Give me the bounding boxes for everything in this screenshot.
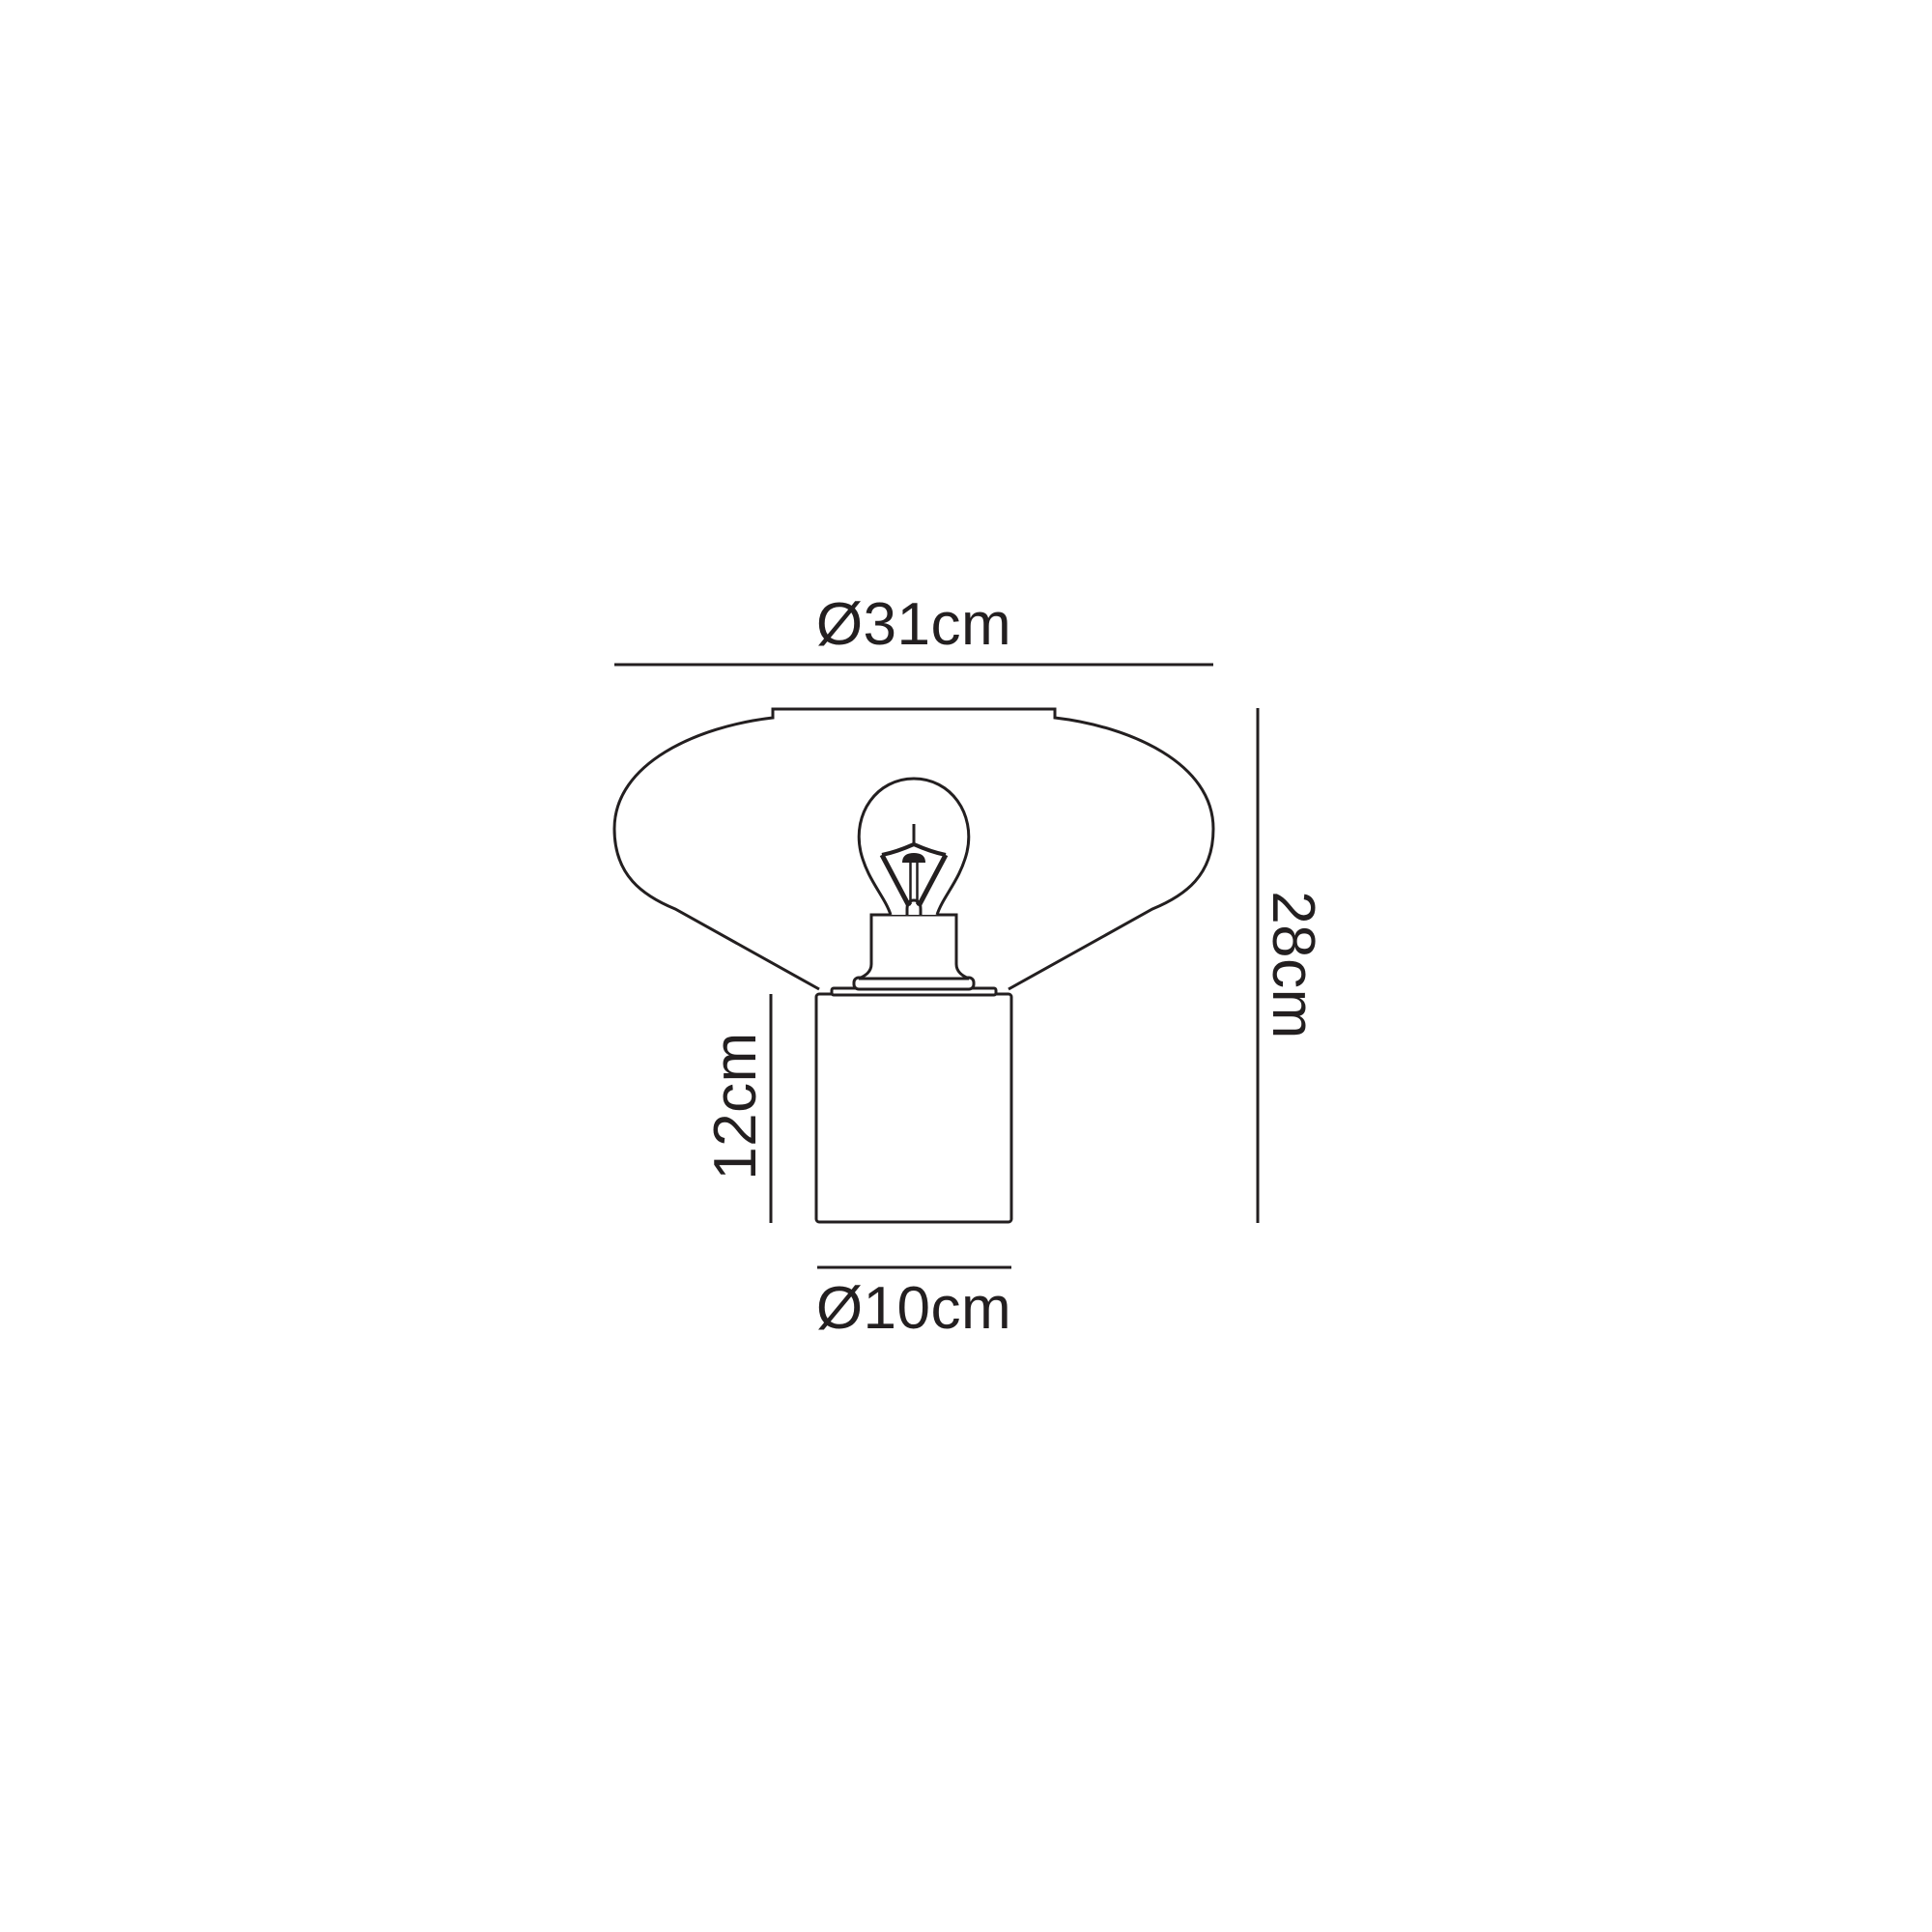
overall-height-label: 28cm xyxy=(1260,891,1326,1039)
bulb-glass-outline xyxy=(859,779,969,915)
socket-body xyxy=(859,915,969,979)
diagram-canvas: Ø31cm 28cm 12cm Ø10cm xyxy=(0,0,1932,1932)
lamp-dimension-drawing: Ø31cm 28cm 12cm Ø10cm xyxy=(0,0,1932,1932)
base-height-label: 12cm xyxy=(702,1032,769,1180)
base-diameter-label: Ø10cm xyxy=(816,1275,1011,1342)
shade-diameter-label: Ø31cm xyxy=(816,591,1011,658)
lamp-base-outline xyxy=(816,994,1011,1222)
dimension-labels: Ø31cm 28cm 12cm Ø10cm xyxy=(702,591,1326,1342)
